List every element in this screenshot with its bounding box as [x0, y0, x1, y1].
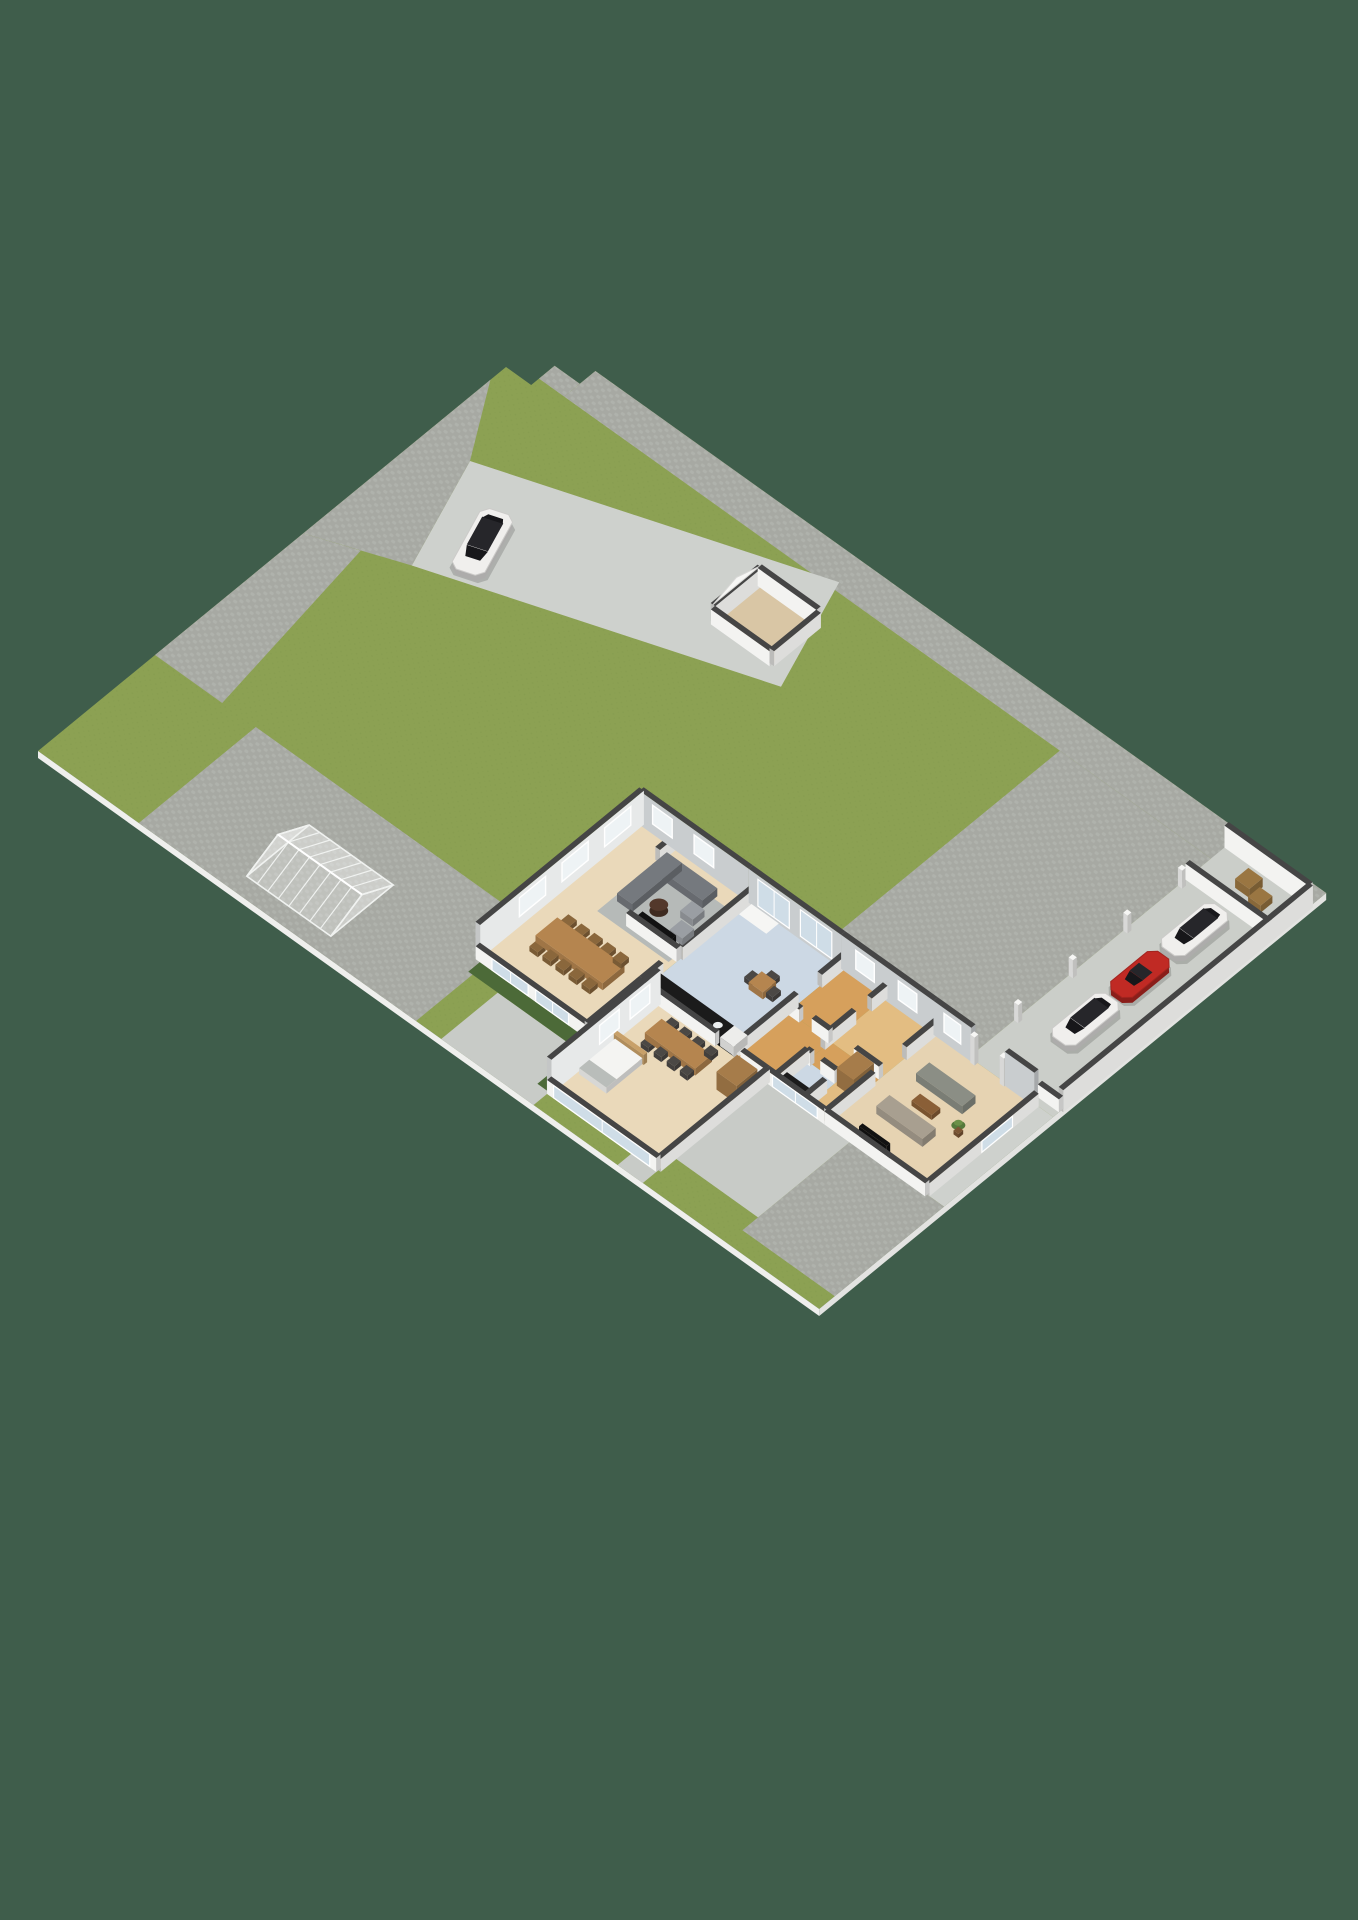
glass-mullion	[774, 891, 775, 918]
glass-mullion	[602, 1120, 603, 1132]
coffee-table-round-top	[649, 899, 668, 911]
carport-post	[1014, 999, 1022, 1023]
family-door-post-side-sw	[970, 1035, 974, 1066]
glass-mullion	[510, 972, 511, 984]
carport-post-side-se	[1128, 912, 1132, 933]
carport-post	[1178, 865, 1186, 889]
floorplan-3d-render	[0, 0, 1358, 1920]
carport-post-side-se	[1073, 957, 1077, 978]
glass-mullion	[552, 1002, 553, 1014]
plant-foliage-top	[954, 1120, 963, 1126]
scene-background	[0, 0, 1358, 1920]
carport-post-side-sw	[1123, 913, 1127, 934]
carport-post-side-se	[1018, 1002, 1022, 1023]
kitchen-sink	[713, 1022, 723, 1028]
family-door-post-side-sw	[1000, 1056, 1004, 1087]
carport-post-side-sw	[1178, 868, 1182, 889]
glass-mullion	[795, 1091, 796, 1103]
carport-post-side-sw	[1014, 1002, 1018, 1023]
carport-post-side-sw	[1069, 957, 1073, 978]
glass-mullion	[816, 921, 817, 948]
family-door-post-side-se	[975, 1034, 979, 1065]
carport-post	[1069, 954, 1077, 978]
carport-post	[1123, 909, 1131, 933]
carport-post-side-se	[1182, 868, 1186, 889]
family-door-post	[970, 1031, 978, 1065]
